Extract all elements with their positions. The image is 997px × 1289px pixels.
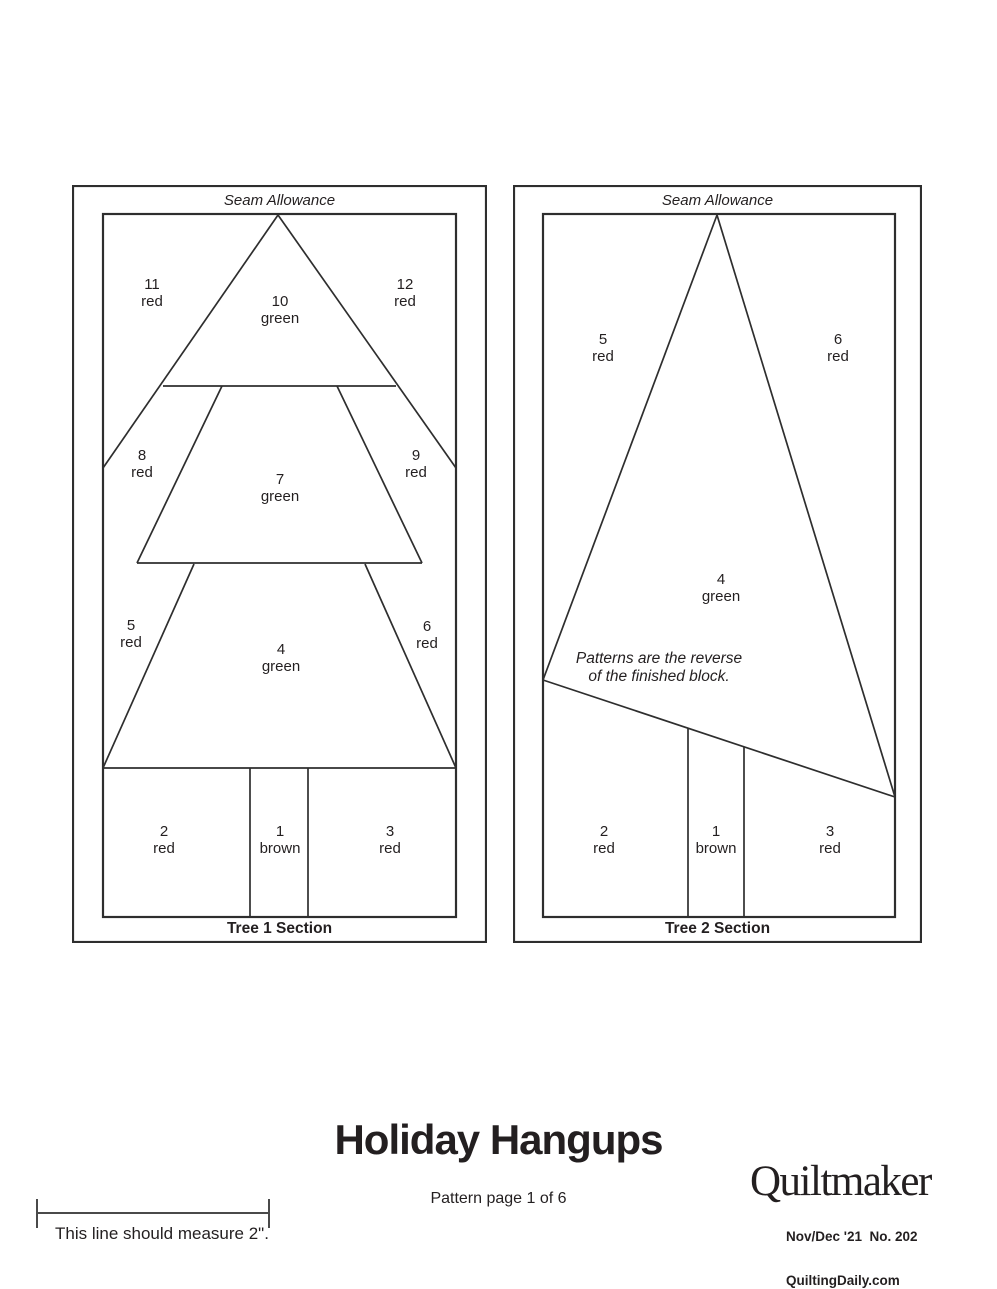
- piece-number: 5: [120, 617, 142, 634]
- reverse-pattern-note: Patterns are the reverse of the finished…: [576, 650, 742, 686]
- tree2-section-label: Tree 2 Section: [513, 920, 922, 938]
- piece-color: red: [416, 635, 438, 652]
- piece-number: 4: [262, 641, 300, 658]
- piece-color: red: [120, 634, 142, 651]
- website: QuiltingDaily.com: [786, 1274, 918, 1289]
- quiltmaker-logo: Quiltmaker: [750, 1157, 931, 1206]
- piece-number: 1: [696, 823, 737, 840]
- tree2-panel: Seam Allowance 5 red 6 red 4 green Patte…: [513, 185, 922, 943]
- tree1-section-label: Tree 1 Section: [72, 920, 487, 938]
- piece-color: red: [379, 840, 401, 857]
- piece-number: 7: [261, 471, 299, 488]
- piece-number: 5: [592, 331, 614, 348]
- tree2-piece-5-label: 5 red: [592, 331, 614, 365]
- piece-number: 9: [405, 447, 427, 464]
- tree1-panel: Seam Allowance 11 red 10 green 12 red 8 …: [72, 185, 487, 943]
- tree1-piece-1-label: 1 brown: [260, 823, 301, 857]
- tree1-piece-11-label: 11 red: [141, 276, 163, 310]
- scale-reference-note: This line should measure 2".: [55, 1224, 269, 1244]
- piece-number: 4: [702, 571, 740, 588]
- piece-color: red: [827, 348, 849, 365]
- scale-tick-left: [36, 1199, 38, 1228]
- piece-number: 12: [394, 276, 416, 293]
- scale-reference-line: [37, 1212, 270, 1214]
- tree2-piece-1-label: 1 brown: [696, 823, 737, 857]
- seam-allowance-label: Seam Allowance: [513, 192, 922, 209]
- tree2-piece-2-label: 2 red: [593, 823, 615, 857]
- tree2-piecing-lines: [543, 215, 895, 917]
- tree1-piece-2-label: 2 red: [153, 823, 175, 857]
- piece-color: red: [394, 293, 416, 310]
- piece-color: green: [261, 488, 299, 505]
- piece-color: red: [141, 293, 163, 310]
- tree1-piece-10-label: 10 green: [261, 293, 299, 327]
- tree2-piece-4-label: 4 green: [702, 571, 740, 605]
- piece-number: 10: [261, 293, 299, 310]
- piece-color: red: [153, 840, 175, 857]
- tree1-piece-5-label: 5 red: [120, 617, 142, 651]
- piece-number: 2: [153, 823, 175, 840]
- piece-number: 11: [141, 276, 163, 293]
- piece-color: green: [262, 658, 300, 675]
- piece-number: 6: [827, 331, 849, 348]
- tree1-piece-6-label: 6 red: [416, 618, 438, 652]
- piece-color: red: [592, 348, 614, 365]
- piece-color: red: [131, 464, 153, 481]
- piece-color: red: [593, 840, 615, 857]
- piece-color: brown: [696, 840, 737, 857]
- piece-number: 8: [131, 447, 153, 464]
- tree1-piece-4-label: 4 green: [262, 641, 300, 675]
- tree1-piece-7-label: 7 green: [261, 471, 299, 505]
- pattern-page: Seam Allowance 11 red 10 green 12 red 8 …: [0, 0, 997, 1289]
- piece-color: red: [819, 840, 841, 857]
- piece-number: 3: [379, 823, 401, 840]
- publication-info: Nov/Dec '21 No. 202 QuiltingDaily.com Co…: [786, 1201, 918, 1289]
- issue-info: Nov/Dec '21 No. 202: [786, 1230, 918, 1245]
- piece-number: 6: [416, 618, 438, 635]
- piece-number: 3: [819, 823, 841, 840]
- tree2-piece-3-label: 3 red: [819, 823, 841, 857]
- piece-color: green: [261, 310, 299, 327]
- piece-color: red: [405, 464, 427, 481]
- piece-color: brown: [260, 840, 301, 857]
- tree2-piece-6-label: 6 red: [827, 331, 849, 365]
- tree1-piece-12-label: 12 red: [394, 276, 416, 310]
- note-line-1: Patterns are the reverse: [576, 650, 742, 668]
- seam-allowance-label: Seam Allowance: [72, 192, 487, 209]
- tree1-piece-8-label: 8 red: [131, 447, 153, 481]
- note-line-2: of the finished block.: [576, 668, 742, 686]
- piece-color: green: [702, 588, 740, 605]
- tree1-piece-3-label: 3 red: [379, 823, 401, 857]
- piece-number: 1: [260, 823, 301, 840]
- tree1-piece-9-label: 9 red: [405, 447, 427, 481]
- piece-number: 2: [593, 823, 615, 840]
